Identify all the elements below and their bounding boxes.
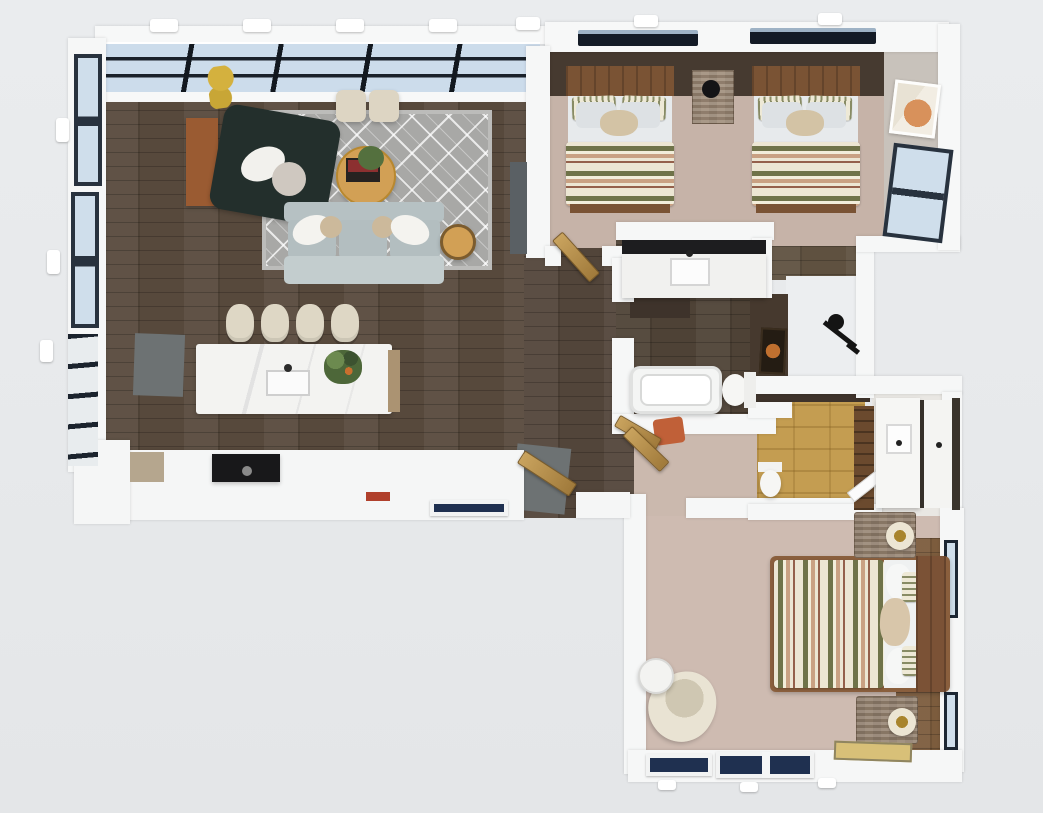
wall-nub-left-2: [47, 250, 60, 274]
floor-plan-render: [0, 0, 1043, 813]
wall-nub-bedroom-1: [634, 15, 658, 27]
island-plant: [324, 350, 362, 384]
wall-nub-left-3: [40, 340, 53, 362]
master-bed-duvet: [774, 560, 884, 688]
decor-plant-gold: [205, 64, 239, 109]
sofa-front: [284, 256, 444, 284]
bed1-duvet: [566, 142, 674, 206]
wall-nub-top-3: [336, 19, 364, 32]
master-headboard: [916, 556, 946, 692]
master-right-window-2: [944, 692, 958, 750]
corridor-south-wall: [576, 492, 630, 518]
wall-nub-left-1: [56, 118, 69, 142]
pouf-1: [336, 90, 366, 122]
wall-nub-bedroom-2: [818, 13, 842, 25]
bedroom-top-window-2: [750, 28, 876, 44]
cooktop-dial: [242, 466, 252, 476]
left-window-upper-1: [74, 54, 102, 186]
living-wall-cabinet: [510, 162, 527, 254]
suite-top-wall: [748, 376, 962, 394]
bedroom-top-window-1: [578, 30, 698, 46]
suite-right-edge-dark: [952, 398, 960, 510]
bar-stool-3: [296, 304, 324, 342]
bed1-foot-rail: [570, 204, 670, 213]
clerestory-window-band: [100, 42, 540, 94]
vanity-sink: [886, 424, 912, 454]
wall-nub-top-1: [150, 19, 178, 32]
bedroom-west-wall: [526, 46, 550, 258]
master-bottom-window-divider: [762, 752, 770, 778]
kitchen-mat: [133, 333, 185, 397]
counter-red-accent: [366, 492, 390, 501]
master-left-wall: [624, 494, 646, 774]
left-window-slats: [68, 334, 98, 466]
gold-bath-toilet-bowl: [760, 470, 781, 497]
bed2-foot-rail: [756, 204, 856, 213]
bathroom-counter-dark: [622, 240, 766, 254]
bar-stool-2: [261, 304, 289, 342]
kitchen-bottom-window: [430, 500, 508, 516]
wall-nub-master-2: [740, 782, 758, 792]
bar-stool-1: [226, 304, 254, 342]
bedroom-east-window: [882, 143, 953, 244]
island-sink: [266, 370, 310, 396]
vanity-counter-2: [924, 400, 954, 508]
bathroom-art: [759, 327, 787, 374]
shared-nightstand-lamp: [702, 80, 720, 98]
bathroom-top-wall: [616, 222, 774, 240]
master-gold-mat: [834, 741, 913, 763]
wall-nub-top-5: [516, 17, 540, 30]
master-lamp-north: [886, 522, 914, 550]
vanity-divider: [920, 400, 924, 508]
wall-nub-master-1: [658, 780, 676, 790]
master-bottom-window-1: [646, 754, 712, 776]
bed1-headboard: [566, 66, 674, 96]
kitchen-cabinet-beige: [130, 452, 164, 482]
coffee-table-plant: [358, 146, 384, 170]
wall-nub-top-2: [243, 19, 271, 32]
bar-stool-4: [331, 304, 359, 342]
bathtub-basin: [640, 374, 712, 406]
master-lamp-south: [888, 708, 916, 736]
bedroom-east-art: [889, 79, 941, 138]
side-table-round: [440, 224, 476, 260]
vanity-faucet-1: [896, 440, 902, 446]
bathroom-sink: [670, 258, 710, 286]
wall-nub-top-4: [429, 19, 457, 32]
armchair-pillow-gray: [272, 162, 306, 196]
hall-nook-floor: [766, 246, 860, 280]
vanity-faucet-2: [936, 442, 942, 448]
bed2-duvet: [752, 142, 860, 206]
bed1-pillow-tan: [600, 110, 638, 136]
bed2-pillow-tan: [786, 110, 824, 136]
master-side-table: [638, 658, 674, 694]
bed2-headboard: [752, 66, 860, 96]
sofa-pillow-tan-1: [320, 216, 342, 238]
bathroom-faucet: [686, 250, 693, 257]
island-faucet: [284, 364, 292, 372]
wall-nub-master-3: [818, 778, 836, 788]
toilet-tank: [744, 372, 756, 408]
pouf-2: [369, 90, 399, 122]
left-window-upper-2: [71, 192, 99, 328]
bathroom-partition-dark: [630, 298, 690, 318]
island-side-panel: [388, 350, 400, 412]
clerestory-inner-band: [104, 92, 540, 102]
